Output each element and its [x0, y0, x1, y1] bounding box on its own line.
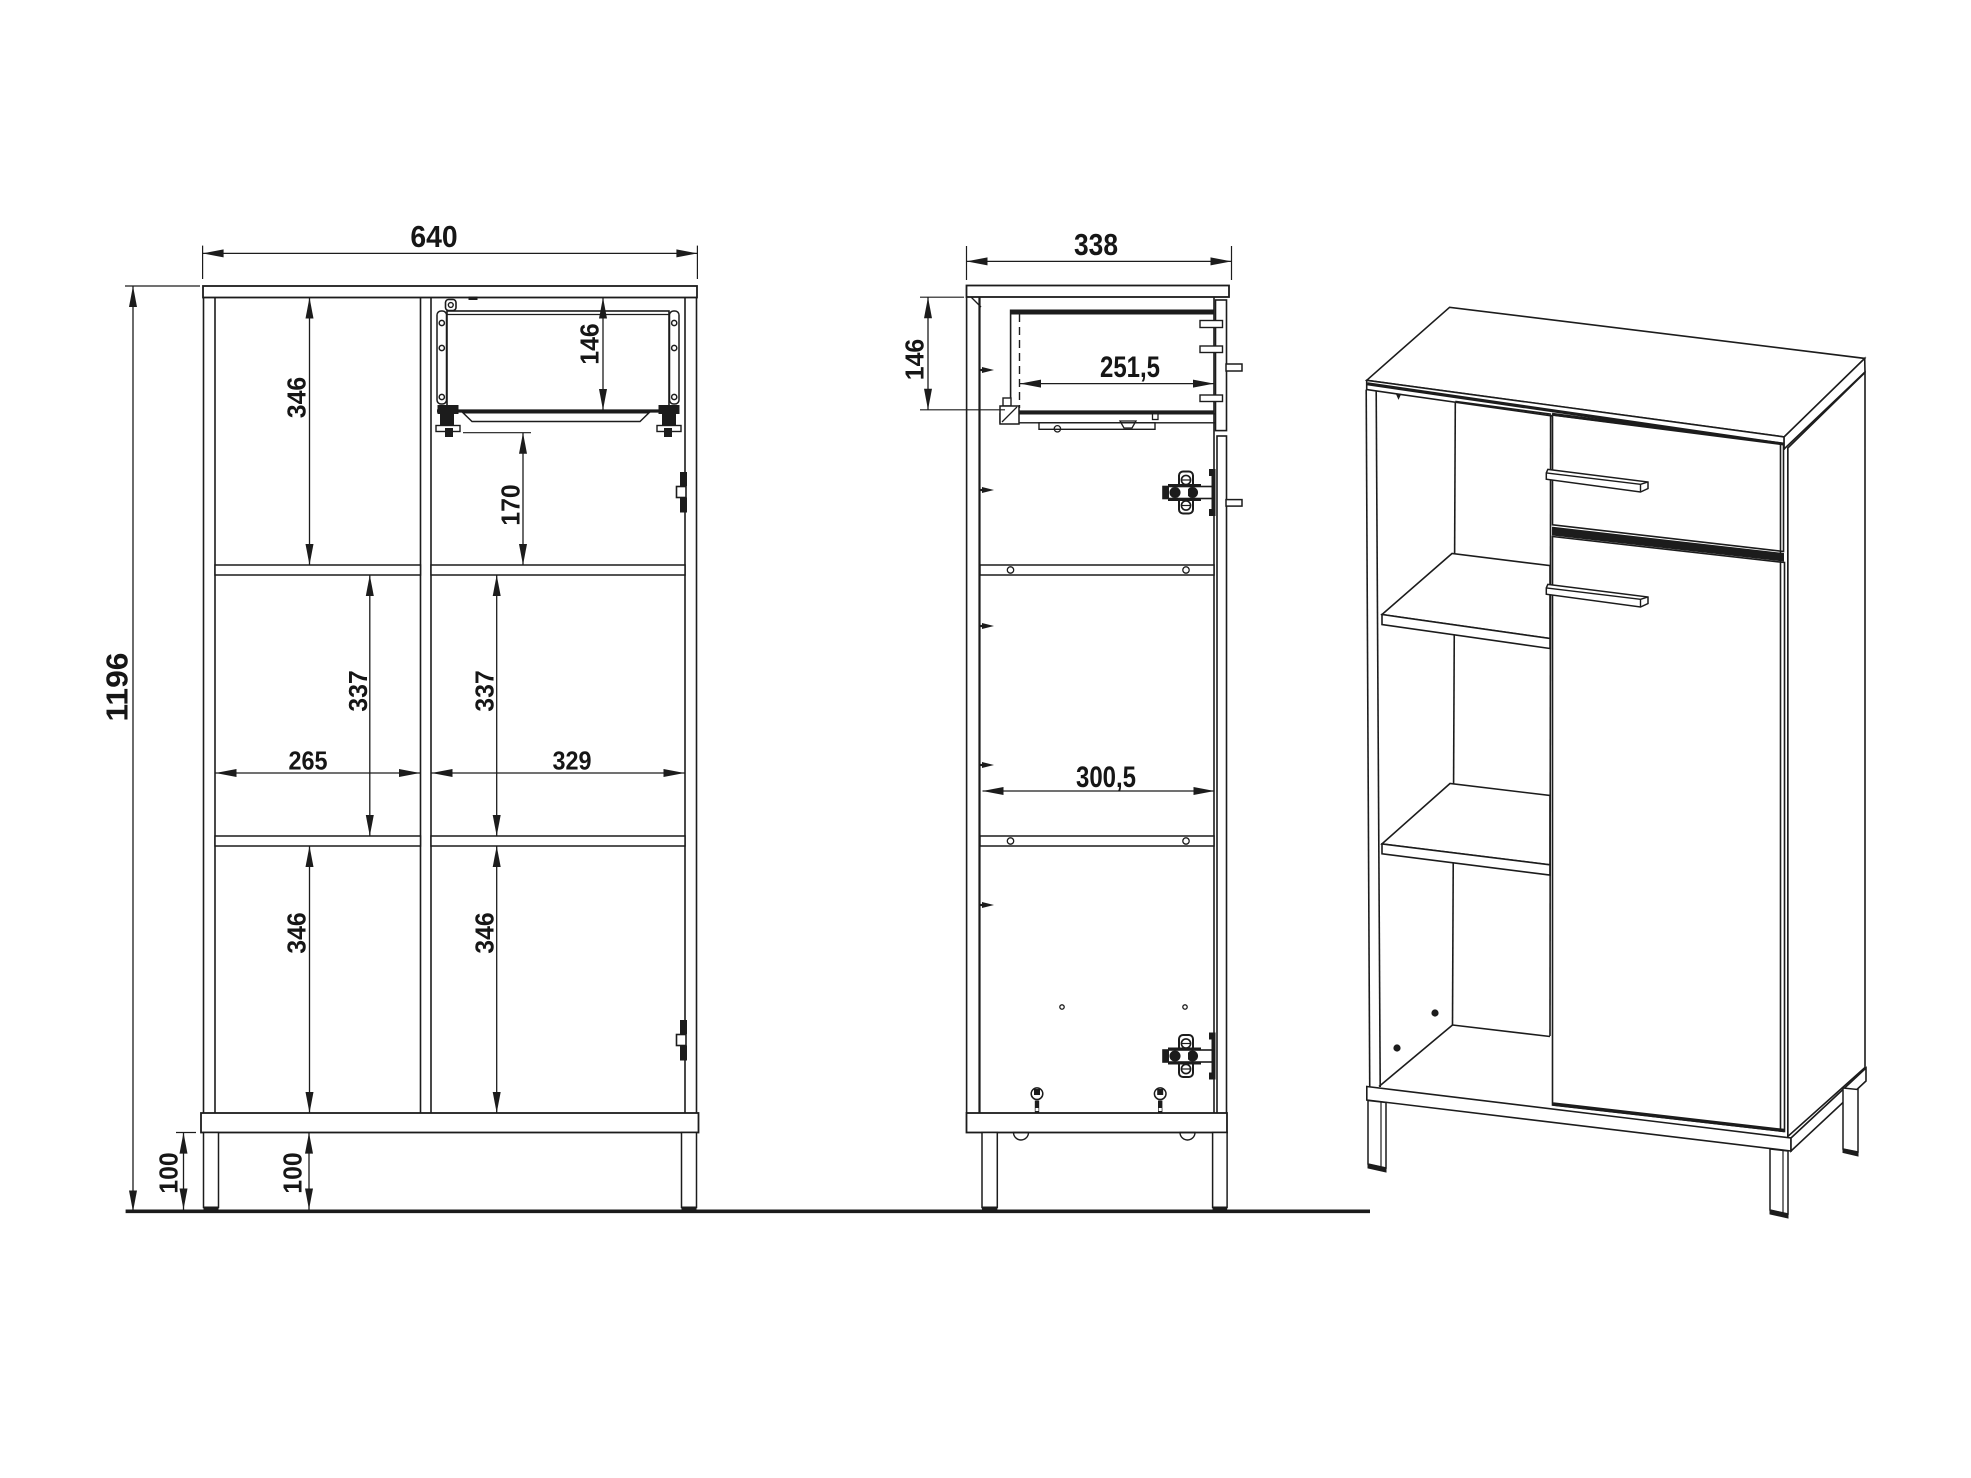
svg-text:640: 640 [410, 219, 457, 254]
svg-text:100: 100 [278, 1152, 308, 1194]
svg-text:251,5: 251,5 [1100, 351, 1160, 384]
svg-text:300,5: 300,5 [1076, 761, 1136, 794]
svg-text:146: 146 [900, 339, 930, 381]
svg-text:100: 100 [154, 1152, 184, 1194]
svg-text:329: 329 [553, 746, 592, 776]
svg-text:146: 146 [575, 323, 605, 365]
svg-text:346: 346 [282, 912, 312, 954]
svg-text:338: 338 [1074, 227, 1118, 262]
svg-text:346: 346 [470, 912, 500, 954]
svg-text:1196: 1196 [100, 653, 135, 722]
svg-text:265: 265 [289, 746, 328, 776]
svg-text:337: 337 [470, 670, 500, 712]
svg-text:170: 170 [496, 484, 526, 526]
svg-text:337: 337 [343, 670, 373, 712]
svg-text:346: 346 [282, 377, 312, 419]
